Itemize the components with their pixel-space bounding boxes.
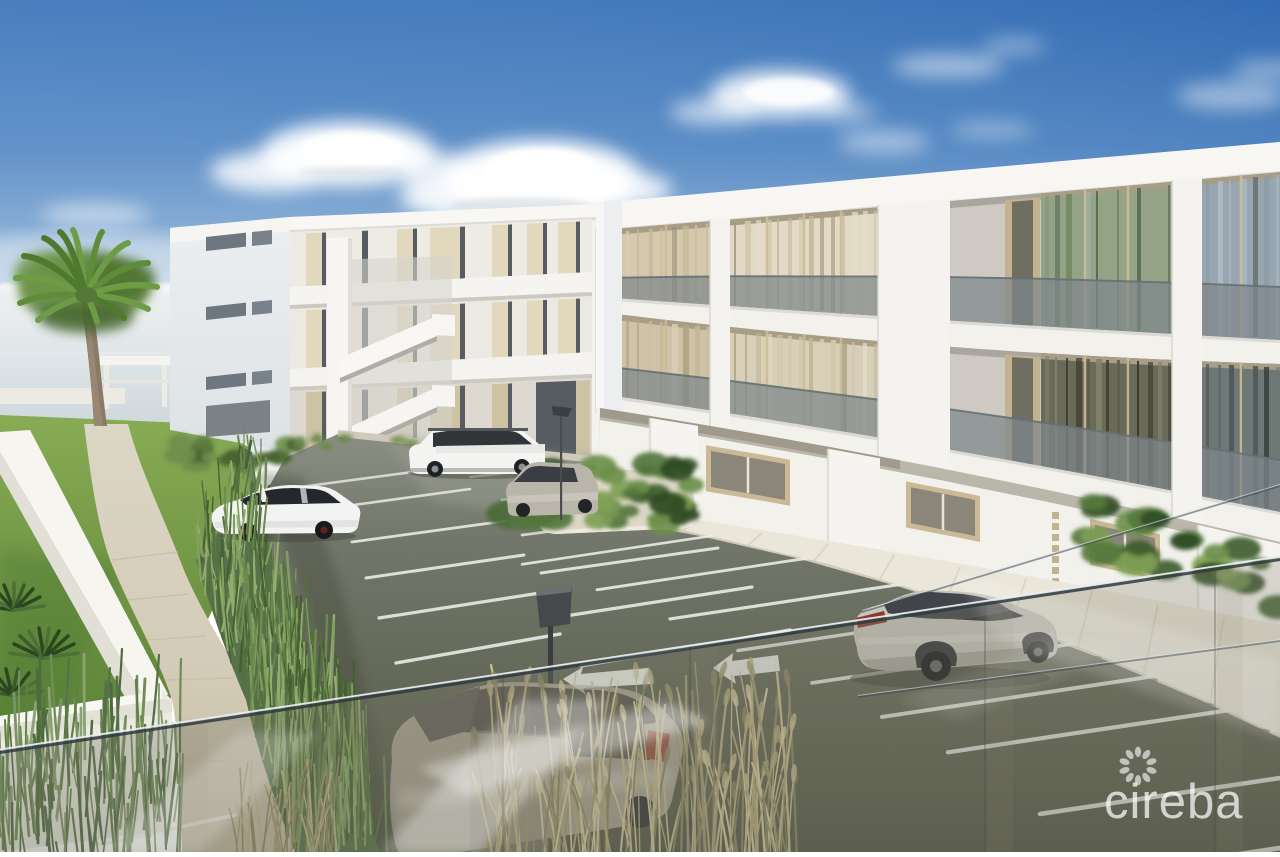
svg-text:cireba: cireba <box>1104 775 1243 829</box>
